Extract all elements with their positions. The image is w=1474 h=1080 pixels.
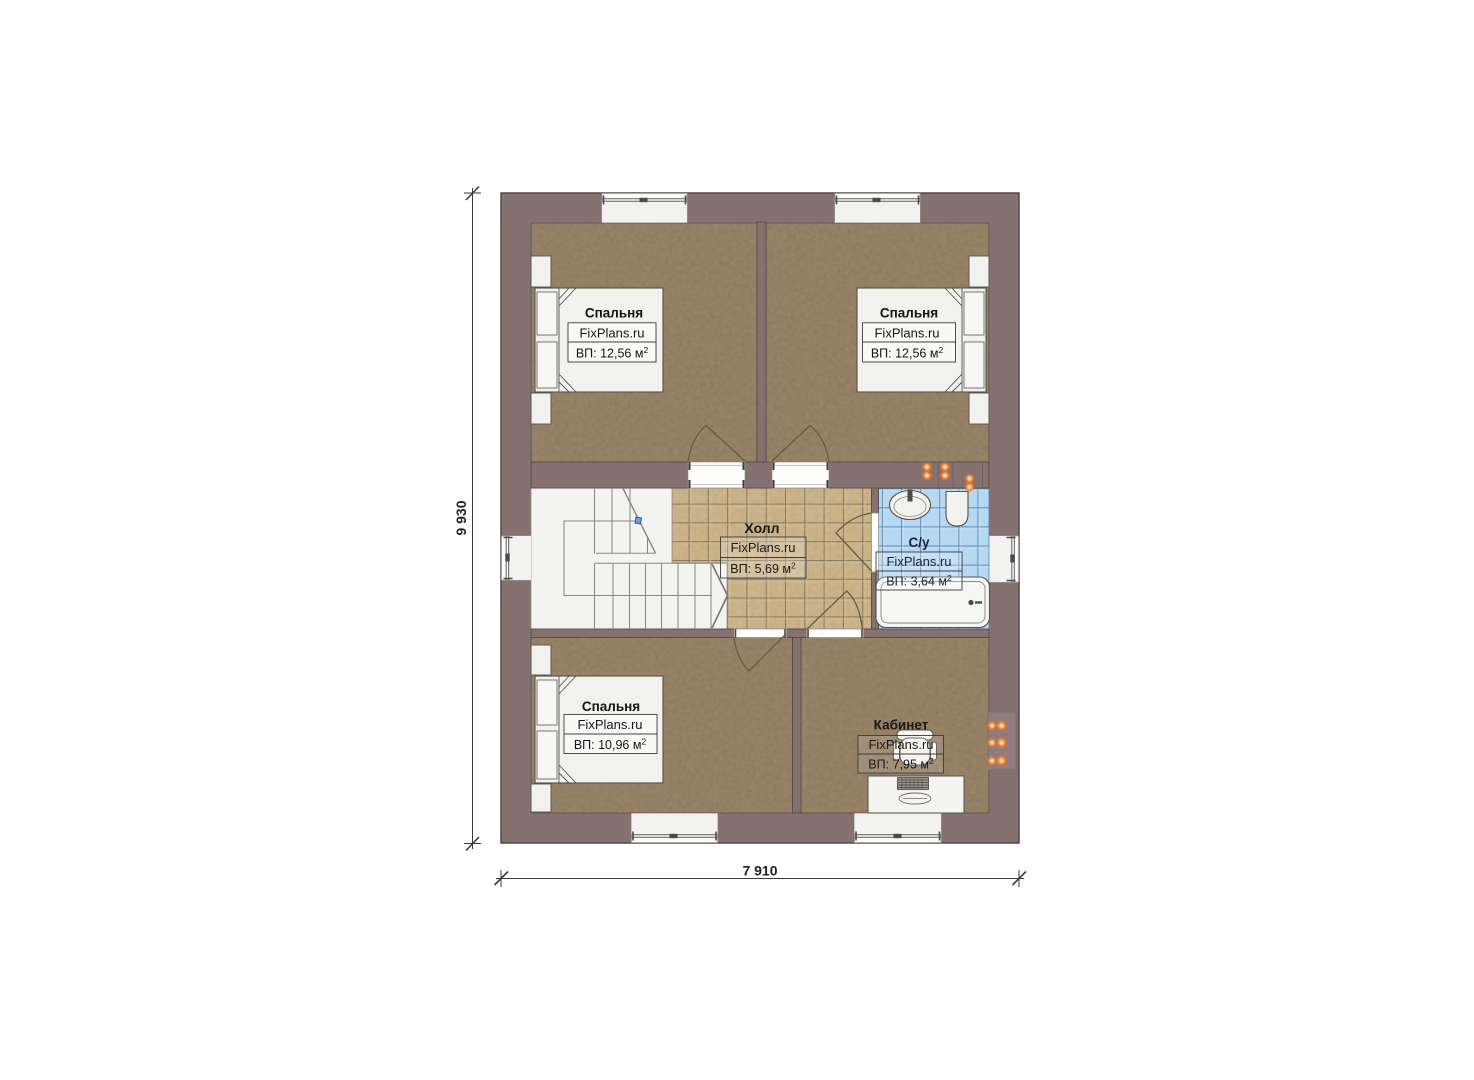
- svg-text:ВП: 3,64 м2: ВП: 3,64 м2: [886, 573, 952, 589]
- svg-text:FixPlans.ru: FixPlans.ru: [577, 717, 642, 732]
- svg-text:FixPlans.ru: FixPlans.ru: [886, 554, 951, 569]
- svg-text:Кабинет: Кабинет: [874, 718, 929, 733]
- svg-text:ВП: 7,95 м2: ВП: 7,95 м2: [868, 756, 934, 772]
- svg-text:7 910: 7 910: [742, 863, 777, 879]
- svg-text:ВП: 5,69 м2: ВП: 5,69 м2: [730, 561, 796, 577]
- svg-text:FixPlans.ru: FixPlans.ru: [868, 737, 933, 752]
- svg-text:FixPlans.ru: FixPlans.ru: [579, 326, 644, 341]
- svg-text:Спальня: Спальня: [585, 306, 643, 321]
- svg-text:ВП: 12,56 м2: ВП: 12,56 м2: [576, 345, 649, 361]
- svg-text:Холл: Холл: [744, 520, 779, 536]
- svg-text:Спальня: Спальня: [880, 306, 938, 321]
- svg-text:С/у: С/у: [908, 535, 930, 550]
- svg-text:ВП: 10,96 м2: ВП: 10,96 м2: [574, 737, 647, 753]
- svg-text:FixPlans.ru: FixPlans.ru: [874, 326, 939, 341]
- svg-text:Спальня: Спальня: [582, 699, 640, 714]
- svg-text:ВП: 12,56 м2: ВП: 12,56 м2: [871, 345, 944, 361]
- svg-text:FixPlans.ru: FixPlans.ru: [730, 540, 795, 555]
- svg-text:9 930: 9 930: [453, 500, 469, 535]
